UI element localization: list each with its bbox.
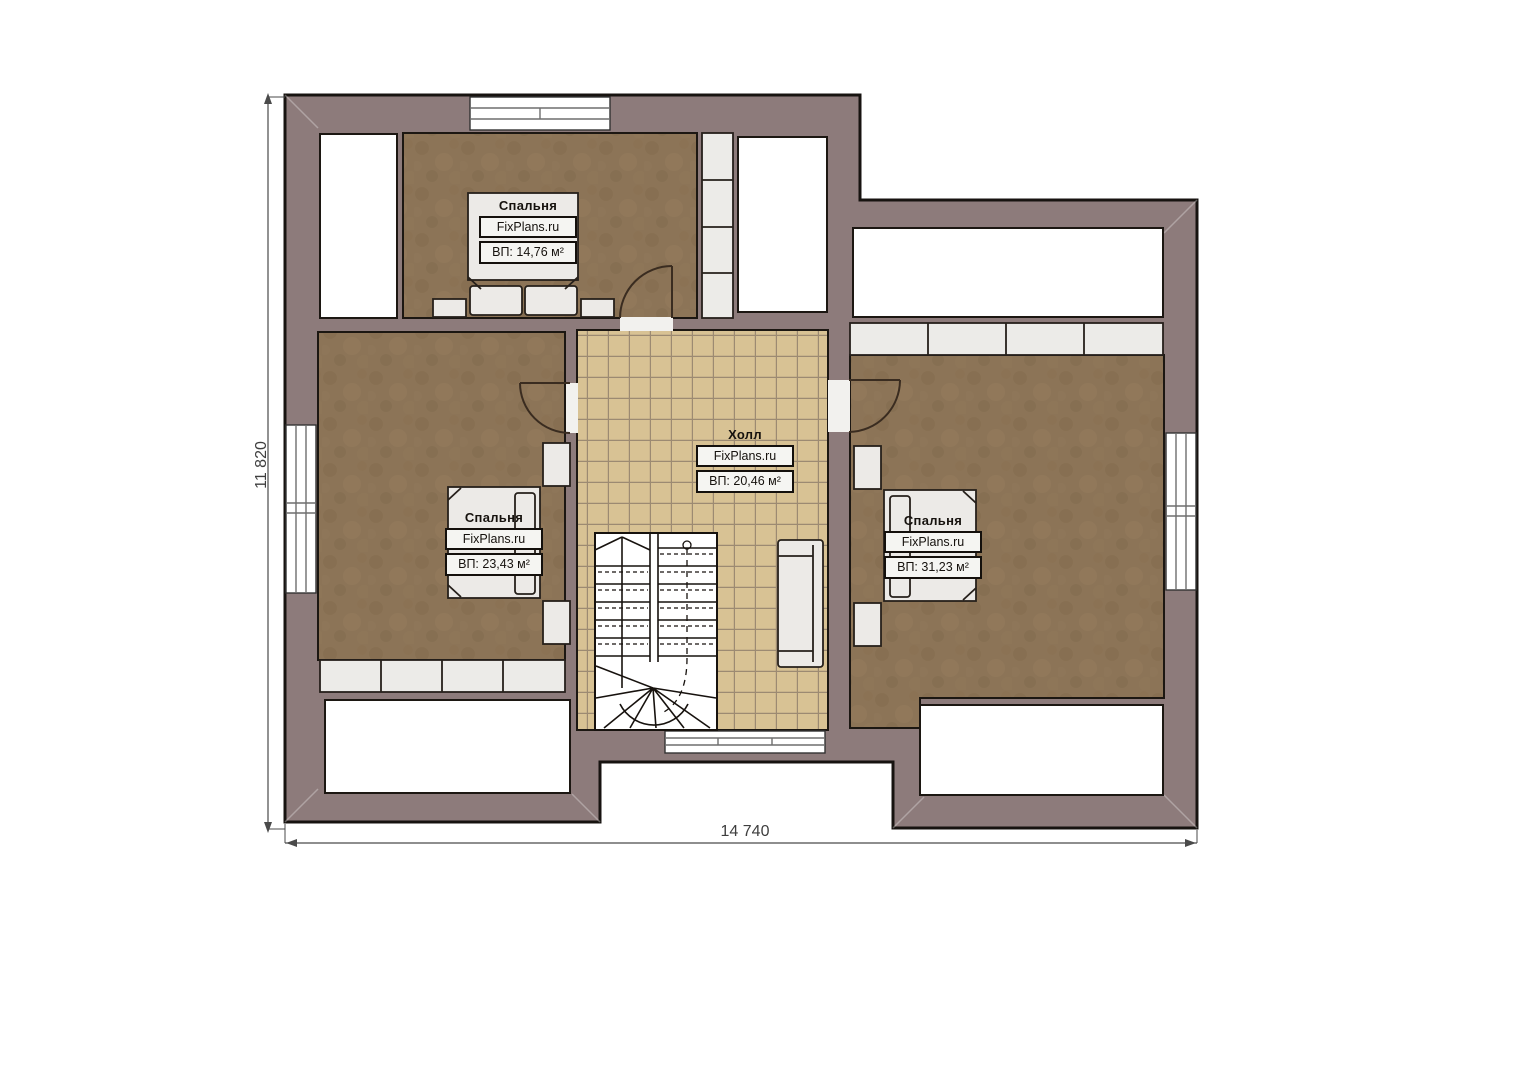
dimension-width: 14 740 <box>721 823 770 841</box>
roof-space-bottom-left <box>325 700 570 793</box>
nightstand-right-bedroom-2 <box>854 603 881 646</box>
window-top <box>470 97 610 130</box>
staircase <box>595 533 717 730</box>
window-right <box>1166 433 1196 590</box>
room-name: Спальня <box>499 198 557 213</box>
room-label-bedroom-left: Спальня FixPlans.ru ВП: 23,43 м² <box>445 510 543 576</box>
roof-space-bottom-right <box>920 705 1163 795</box>
nightstand-right-bedroom-1 <box>854 446 881 489</box>
roof-space-top-middle <box>738 137 827 312</box>
sofa-hall <box>778 540 823 667</box>
roof-space-top-right <box>853 228 1163 317</box>
nightstand-top-left <box>433 299 466 317</box>
nightstand-top-right <box>581 299 614 317</box>
dimension-height: 11 820 <box>253 441 271 489</box>
room-area: ВП: 20,46 м² <box>696 470 794 492</box>
brand-watermark: FixPlans.ru <box>696 445 794 467</box>
room-label-bedroom-right: Спальня FixPlans.ru ВП: 31,23 м² <box>884 513 982 579</box>
room-area: ВП: 31,23 м² <box>884 556 982 578</box>
brand-watermark: FixPlans.ru <box>479 216 577 238</box>
roof-space-top-left <box>320 134 397 318</box>
room-name: Холл <box>728 427 762 442</box>
window-left <box>286 425 316 593</box>
room-name: Спальня <box>904 513 962 528</box>
floor-plan-drawing <box>0 0 1528 1080</box>
brand-watermark: FixPlans.ru <box>884 531 982 553</box>
window-bottom-hall <box>665 731 825 753</box>
nightstand-left-bedroom-2 <box>543 601 570 644</box>
room-area: ВП: 14,76 м² <box>479 241 577 263</box>
room-name: Спальня <box>465 510 523 525</box>
wardrobe-column-top-bedroom <box>702 133 733 318</box>
room-area: ВП: 23,43 м² <box>445 553 543 575</box>
nightstand-left-bedroom-1 <box>543 443 570 486</box>
room-label-bedroom-top: Спальня FixPlans.ru ВП: 14,76 м² <box>479 198 577 264</box>
brand-watermark: FixPlans.ru <box>445 528 543 550</box>
room-label-hall: Холл FixPlans.ru ВП: 20,46 м² <box>696 427 794 493</box>
floor-plan-page: Спальня FixPlans.ru ВП: 14,76 м² Спальня… <box>0 0 1528 1080</box>
